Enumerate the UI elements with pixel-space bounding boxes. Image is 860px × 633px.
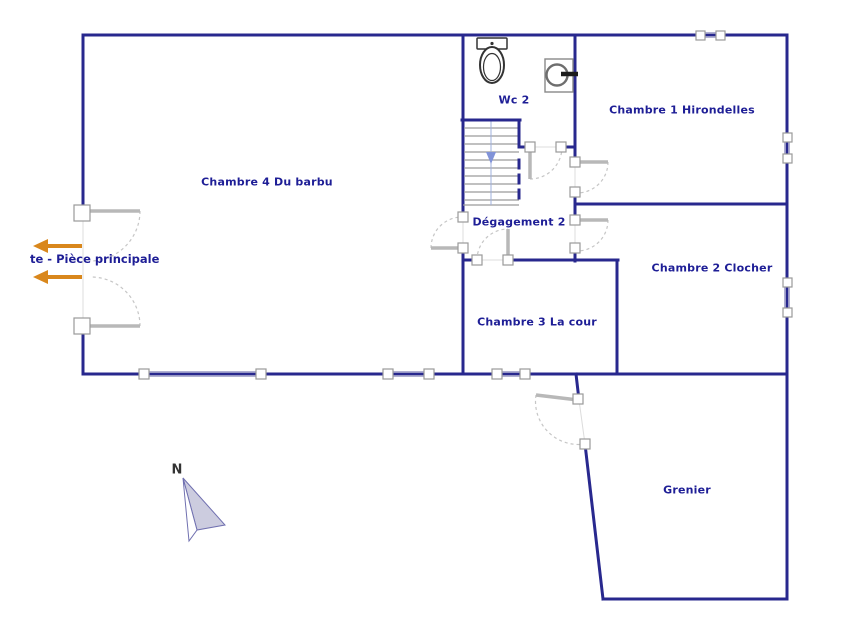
door-swing-chambre2	[570, 215, 608, 253]
washing-machine-icon	[545, 59, 578, 92]
door-swing-entry-double	[74, 205, 140, 334]
room-label-chambre-4: Chambre 4 Du barbu	[201, 176, 333, 189]
stairs-direction-arrow	[486, 152, 496, 164]
door-swing-wc2	[525, 142, 566, 179]
room-label-chambre-3: Chambre 3 La cour	[477, 316, 597, 329]
room-label-chambre-2: Chambre 2 Clocher	[652, 262, 773, 275]
room-label-wc-2: Wc 2	[499, 94, 530, 107]
floor-plan-canvas: Chambre 4 Du barbu Wc 2 Chambre 1 Hirond…	[0, 0, 860, 633]
door-swing-chambre4	[431, 212, 468, 253]
exit-annotation-label: te - Pièce principale	[30, 252, 159, 266]
room-label-chambre-1: Chambre 1 Hirondelles	[609, 104, 755, 117]
north-label: N	[172, 463, 183, 478]
toilet-icon	[477, 38, 507, 83]
door-swing-chambre1	[570, 157, 608, 197]
room-label-degagement-2: Dégagement 2	[472, 216, 565, 229]
floor-plan-drawing	[0, 0, 860, 633]
stairs-icon	[462, 120, 520, 205]
room-label-grenier: Grenier	[663, 484, 711, 497]
north-arrow-icon	[183, 478, 225, 541]
